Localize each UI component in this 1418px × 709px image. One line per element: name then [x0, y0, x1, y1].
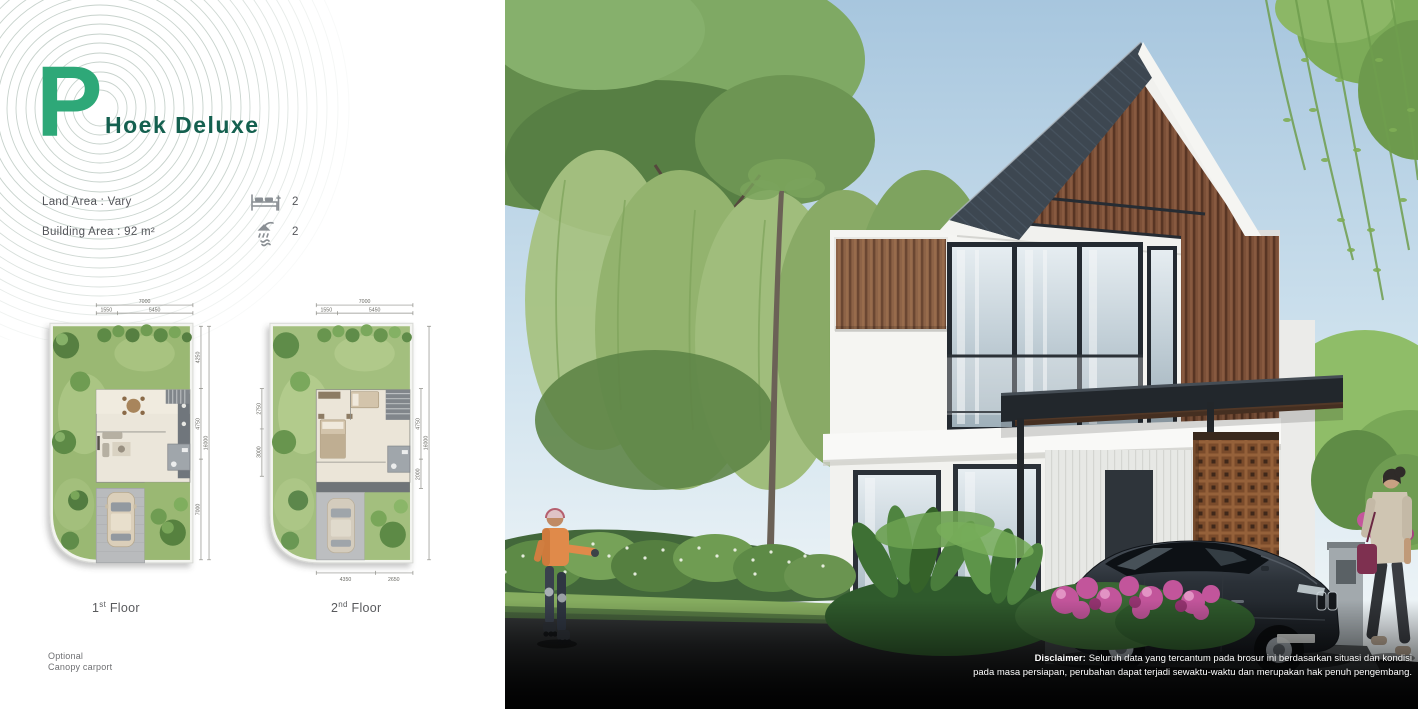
dim-label: 7000 [359, 299, 371, 305]
car-plan-ghost [327, 498, 354, 552]
dim-label: 4750 [415, 418, 421, 430]
building-area-label: Building Area : 92 m² [42, 226, 155, 238]
building-footprint [316, 390, 410, 483]
bathroom-count: 2 [292, 226, 298, 238]
dim-label: 2000 [415, 468, 421, 480]
dim-label: 16000 [204, 436, 210, 451]
dim-label: 2750 [256, 403, 262, 415]
dim-label: 4750 [195, 418, 201, 430]
disclaimer-prefix: Disclaimer: [1035, 653, 1086, 664]
floor-label-2nd: 2nd Floor [331, 600, 382, 615]
floor-label-1st: 1st Floor [92, 600, 140, 615]
land-area-label: Land Area : Vary [42, 196, 132, 208]
building-footprint [96, 390, 190, 483]
dim-label: 3000 [256, 446, 262, 458]
dim-label: 16000 [424, 436, 430, 451]
dim-label: 4350 [340, 577, 352, 583]
dim-label: 2650 [388, 577, 400, 583]
optional-note: Optional Canopy carport [48, 651, 112, 673]
dim-label: 1550 [321, 307, 333, 313]
dim-label: 1550 [101, 307, 113, 313]
house-render-photo: Disclaimer:Seluruh data yang tercantum p… [505, 0, 1418, 709]
disclaimer-text: Disclaimer:Seluruh data yang tercantum p… [852, 652, 1412, 679]
shower-icon [255, 220, 281, 252]
bedroom-count: 2 [292, 196, 298, 208]
dim-label: 5450 [369, 307, 381, 313]
scene-illustration [505, 0, 1418, 709]
dim-label: 7000 [139, 299, 151, 305]
brochure-page: P Hoek Deluxe Land Area : Vary Building … [0, 0, 1418, 709]
dim-label: 4250 [195, 352, 201, 364]
dim-label: 7000 [195, 504, 201, 516]
floor-plan-1st: 7000 1550 5450 4250 4750 7000 16000 [33, 293, 231, 585]
floor-plan-2nd: 7000 1550 5450 4750 2000 16000 2750 3000… [253, 293, 451, 585]
dim-label: 5450 [149, 307, 161, 313]
brand-letter: P [36, 52, 101, 152]
bed-icon [250, 192, 282, 218]
info-panel: P Hoek Deluxe Land Area : Vary Building … [0, 0, 505, 709]
car-plan [105, 492, 136, 546]
product-title: Hoek Deluxe [105, 112, 260, 139]
